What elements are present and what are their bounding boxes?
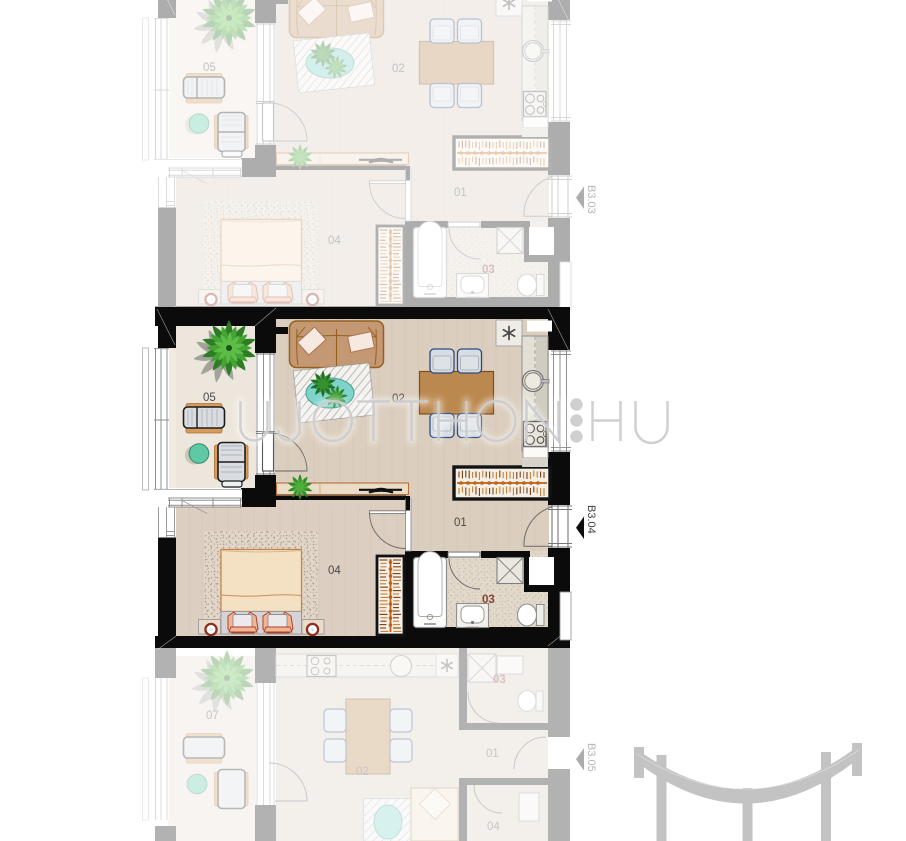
svg-text:02: 02 [356, 766, 369, 778]
svg-text:B3.04: B3.04 [585, 505, 597, 534]
svg-text:B3.05: B3.05 [585, 743, 597, 772]
svg-text:01: 01 [486, 748, 499, 760]
svg-text:04: 04 [487, 821, 500, 833]
svg-text:B3.03: B3.03 [585, 185, 597, 214]
svg-text:07: 07 [206, 710, 219, 722]
svg-text:03: 03 [493, 674, 506, 686]
